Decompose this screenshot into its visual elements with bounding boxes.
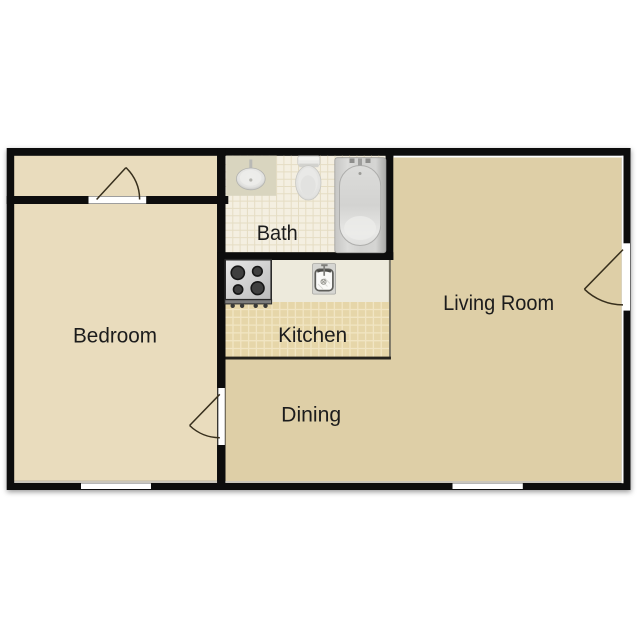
svg-text:Bedroom: Bedroom (73, 325, 157, 348)
svg-text:Bath: Bath (257, 222, 298, 245)
svg-text:Dining: Dining (281, 403, 341, 426)
svg-text:Living Room: Living Room (443, 292, 554, 315)
svg-text:Kitchen: Kitchen (278, 324, 347, 347)
